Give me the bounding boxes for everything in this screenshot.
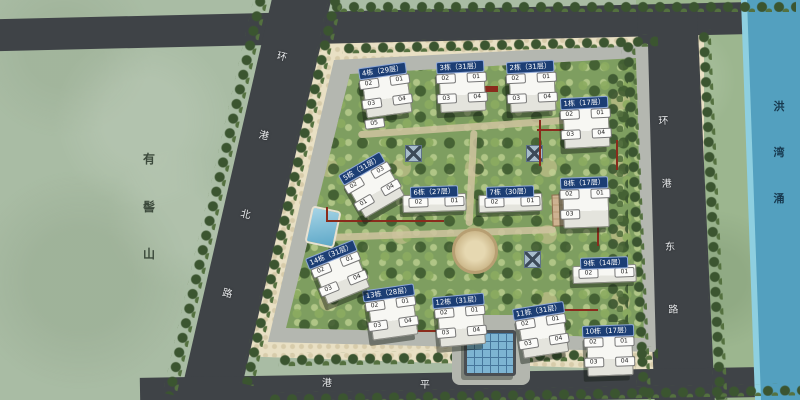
- building-6: 02016栋（27层）: [404, 178, 465, 199]
- road-label-gangping: 港平: [322, 374, 430, 390]
- unit-chip: 02: [559, 189, 579, 200]
- label-char: 涌: [774, 190, 785, 206]
- unit-chip: 01: [536, 72, 556, 83]
- label-char: 环: [658, 112, 669, 128]
- unit-chip: 03: [506, 93, 526, 104]
- building-5: 020301045栋（31层）: [329, 142, 390, 188]
- unit-chip: 01: [464, 305, 485, 317]
- building-8: 0201038栋（17层）: [554, 169, 615, 190]
- unit-chip: 01: [590, 188, 610, 199]
- unit-chip: 03: [435, 327, 456, 339]
- unit-chips: 02010304: [435, 72, 488, 105]
- unit-chips: 02010304: [582, 336, 635, 368]
- unit-chip: 01: [590, 108, 610, 119]
- label-char: 髻: [143, 198, 155, 215]
- building-9: 02019栋（14层）: [574, 249, 635, 270]
- unit-chip: 03: [560, 129, 580, 140]
- building-12: 0201030412栋（31层）: [427, 285, 488, 309]
- building-label-tag: 7栋（30层）: [486, 185, 534, 199]
- building-label-tag: 10栋（17层）: [582, 324, 634, 338]
- unit-chips: 0201030405: [358, 73, 416, 130]
- building-label-tag: 9栋（14层）: [580, 256, 628, 270]
- buildings-layer: 02010304054栋（29层）020103043栋（31层）02010304…: [0, 0, 800, 400]
- label-char: 东: [665, 238, 676, 254]
- unit-chip: 03: [584, 357, 604, 368]
- unit-chips: 02010304: [433, 305, 487, 339]
- building-11: 0201030411栋（31层）: [507, 293, 569, 321]
- unit-chip: 02: [583, 337, 603, 348]
- unit-chip: 02: [433, 307, 454, 319]
- unit-chip: 01: [466, 72, 486, 83]
- unit-chip: 03: [560, 209, 580, 220]
- unit-chip: 03: [361, 97, 382, 110]
- unit-chips: 020103: [558, 188, 611, 220]
- building-label-tag: 3栋（31层）: [436, 60, 484, 75]
- building-label-tag: 1栋（17层）: [560, 96, 608, 111]
- label-char: 路: [221, 284, 234, 301]
- river-label-hongwan: 洪湾涌: [771, 98, 787, 206]
- building-label-tag: 2栋（31层）: [506, 60, 554, 75]
- building-4: 02010304054栋（29层）: [351, 54, 413, 81]
- unit-chip: 03: [436, 93, 456, 104]
- unit-chip: 04: [467, 92, 487, 103]
- label-char: 有: [143, 150, 155, 167]
- label-char: 湾: [774, 144, 785, 160]
- unit-chip: 04: [466, 325, 487, 337]
- label-char: 洪: [774, 98, 785, 114]
- unit-chip: 04: [591, 128, 611, 139]
- label-char: 路: [668, 300, 679, 316]
- building-10: 0201030410栋（17层）: [578, 317, 639, 338]
- building-2: 020103042栋（31层）: [500, 52, 561, 74]
- label-char: 港: [322, 374, 332, 389]
- building-14: 0201030414栋（31层）: [299, 231, 362, 271]
- label-char: 北: [239, 205, 252, 222]
- label-char: 平: [420, 375, 430, 390]
- building-7: 02017栋（30层）: [480, 178, 541, 199]
- label-char: 环: [276, 47, 289, 64]
- unit-chips: 02010304: [559, 108, 612, 141]
- label-char: 港: [258, 126, 271, 143]
- unit-chip: 02: [559, 109, 579, 120]
- unit-chips: 02010304: [505, 72, 558, 105]
- building-label-tag: 6栋（27层）: [410, 185, 458, 199]
- unit-chip: 04: [392, 93, 413, 106]
- unit-chip: 04: [615, 356, 635, 367]
- building-label-tag: 8栋（17层）: [560, 176, 608, 190]
- building-1: 020103041栋（17层）: [554, 88, 615, 110]
- unit-chip: 02: [505, 73, 525, 84]
- unit-chip: 02: [435, 73, 455, 84]
- label-char: 山: [143, 245, 155, 262]
- label-char: 港: [661, 175, 672, 191]
- building-3: 020103043栋（31层）: [430, 52, 491, 74]
- unit-chip: 01: [614, 336, 634, 347]
- unit-chip: 05: [364, 117, 385, 130]
- mountain-label: 有髻山: [140, 150, 158, 262]
- site-plan-canvas: 02010304054栋（29层）020103043栋（31层）02010304…: [0, 0, 800, 400]
